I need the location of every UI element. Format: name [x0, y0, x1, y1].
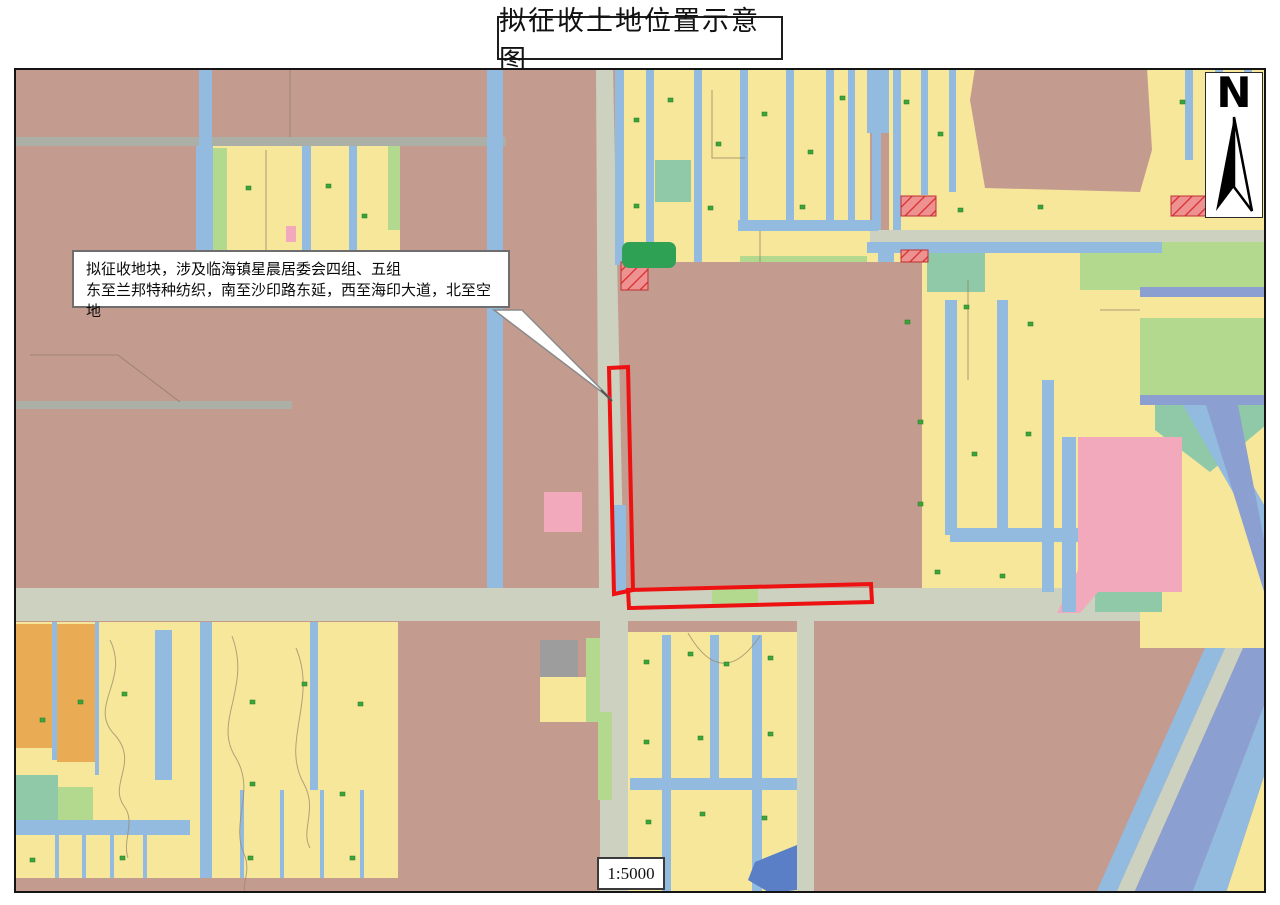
- callout-box: 拟征收地块，涉及临海镇星晨居委会四组、五组 东至兰邦特种纺织，南至沙印路东延，西…: [72, 250, 510, 308]
- north-arrow-icon: [1212, 115, 1256, 215]
- dark-green-parcel: [622, 242, 676, 268]
- north-arrow: N: [1205, 72, 1263, 218]
- map-canvas: [0, 0, 1280, 905]
- callout-line1: 拟征收地块，涉及临海镇星晨居委会四组、五组: [86, 259, 498, 280]
- central-urban-block: [626, 262, 922, 588]
- scale-box: 1:5000: [597, 857, 665, 890]
- callout-line2: 东至兰邦特种纺织，南至沙印路东延，西至海印大道，北至空地: [86, 280, 498, 322]
- north-label: N: [1206, 73, 1262, 113]
- gray-parcel: [540, 640, 578, 677]
- scale-text: 1:5000: [607, 864, 654, 884]
